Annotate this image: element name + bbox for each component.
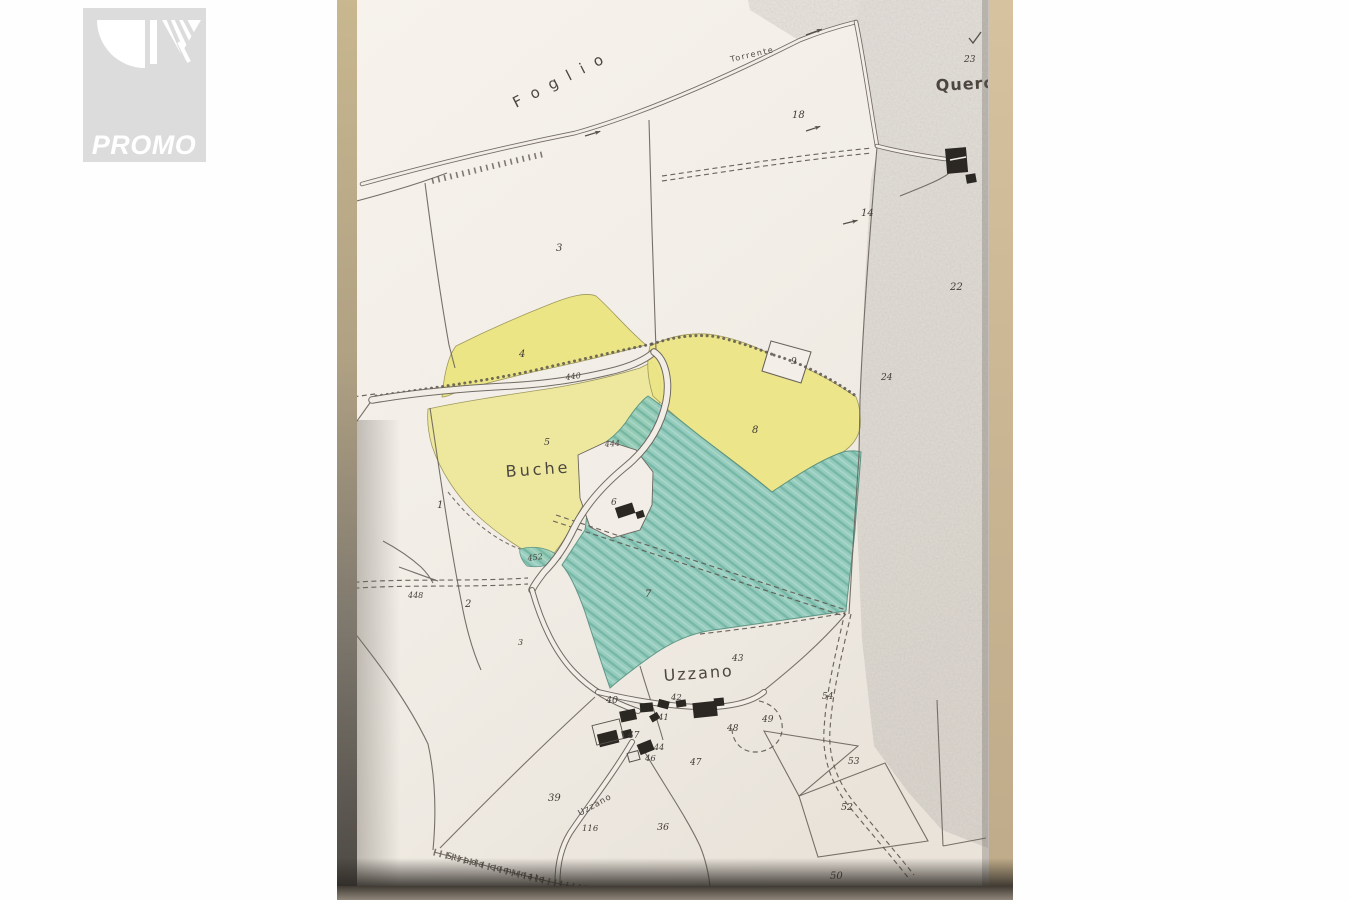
paper-curl-shadow <box>356 420 400 890</box>
parcel-number: 1 <box>437 500 443 511</box>
spot-elevation: 444 <box>603 439 620 449</box>
parcel-number: 2 <box>464 599 471 610</box>
parcel-number: 8 <box>752 425 758 436</box>
parcel-number: 48 <box>726 724 739 734</box>
parcel-number: 24 <box>880 373 893 383</box>
parcel-number: 40 <box>605 695 618 706</box>
promo-watermark-text: PROMO <box>92 130 197 160</box>
parcel-number: 42 <box>670 693 682 703</box>
parcel-number: 53 <box>848 757 860 767</box>
parcel-number: 54 <box>822 692 834 702</box>
parcel-number: 49 <box>761 715 774 725</box>
parcel-number: 39 <box>548 793 561 804</box>
parcel-number: 47 <box>689 758 702 768</box>
parcel-number: 46 <box>644 754 656 764</box>
parcel-number: 41 <box>657 713 669 723</box>
parcel-number: 52 <box>841 802 853 813</box>
photo-bottom-shadow <box>337 858 1013 888</box>
parcel-number: 47 <box>627 731 640 741</box>
parcel-number: 22 <box>949 282 963 293</box>
photo-right-edge <box>989 0 1013 900</box>
parcel-number: 36 <box>657 822 669 833</box>
photo-bottom-edge <box>337 886 1013 900</box>
parcel-number: 44 <box>653 743 664 752</box>
paper-right-edge-shadow <box>982 0 989 900</box>
parcel-number: 23 <box>963 55 976 65</box>
parcel-number: 7 <box>645 589 652 600</box>
parcel-number: 5 <box>544 437 550 448</box>
promo-logo-icon <box>97 16 201 68</box>
parcel-number: 3 <box>518 638 523 647</box>
photo-left-edge <box>337 0 357 900</box>
parcel-number: 116 <box>582 824 599 834</box>
parcel-number: 3 <box>556 243 562 254</box>
promo-watermark: PROMO <box>83 8 206 162</box>
parcel-number: 18 <box>792 110 805 121</box>
parcel-number: 6 <box>611 498 617 508</box>
parcel-number: 4 <box>518 349 525 360</box>
page: { "watermark": { "label": "PROMO", "bg_c… <box>0 0 1350 900</box>
spot-elevation: 448 <box>407 591 423 600</box>
parcel-number: 14 <box>861 208 874 219</box>
parcel-number: 9 <box>791 357 797 367</box>
